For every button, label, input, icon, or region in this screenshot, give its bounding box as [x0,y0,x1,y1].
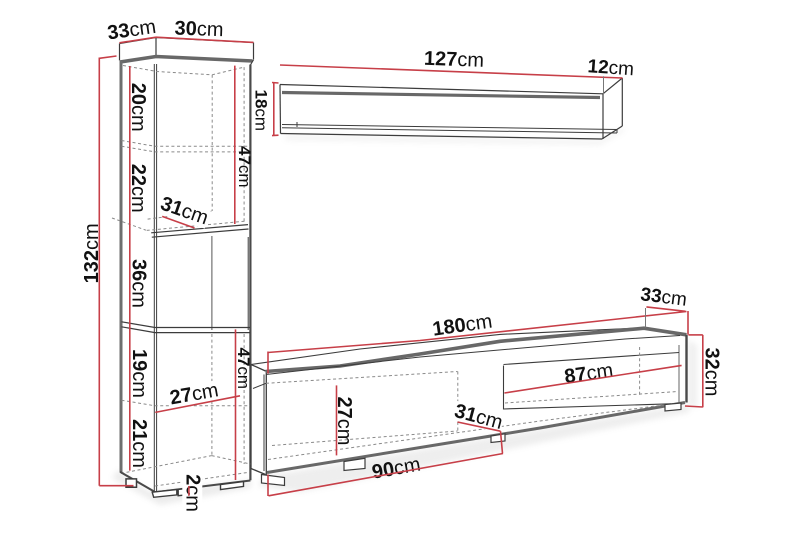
svg-text:36cm: 36cm [128,259,150,308]
svg-text:21cm: 21cm [128,419,150,468]
svg-text:127cm: 127cm [424,48,485,72]
svg-text:47cm: 47cm [236,146,255,188]
svg-text:19cm: 19cm [128,349,150,398]
svg-text:27cm: 27cm [333,397,355,446]
svg-text:132cm: 132cm [81,223,103,283]
svg-text:12cm: 12cm [587,56,635,80]
svg-text:2cm: 2cm [181,474,203,512]
svg-text:20cm: 20cm [127,83,149,132]
svg-text:30cm: 30cm [174,17,224,41]
svg-text:22cm: 22cm [127,164,149,213]
svg-text:47cm: 47cm [234,348,253,390]
svg-text:18cm: 18cm [252,90,271,132]
svg-text:32cm: 32cm [701,348,723,397]
